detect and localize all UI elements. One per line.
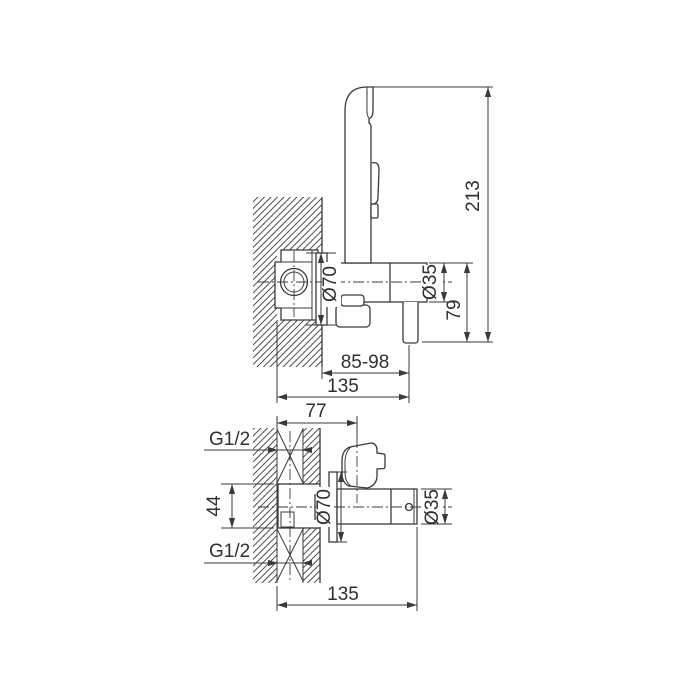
sprayer-handle bbox=[345, 87, 373, 263]
sprayer-trigger bbox=[372, 163, 379, 204]
spout bbox=[403, 302, 418, 343]
dim-label-77: 77 bbox=[305, 401, 326, 422]
wall-hatch-top bbox=[253, 197, 322, 250]
control-knob-cap bbox=[341, 295, 364, 306]
plan-view bbox=[253, 428, 417, 583]
plan-wall-hatch-right-upper bbox=[303, 428, 320, 484]
thread-label-top: G1/2 bbox=[209, 429, 250, 450]
sprayer-trigger-hook bbox=[371, 204, 378, 218]
wall-hatch-left bbox=[253, 250, 277, 320]
dim-label-dia35-plan: Ø35 bbox=[422, 489, 443, 525]
plan-wall-hatch-right-lower bbox=[303, 528, 320, 583]
dimension-labels: 85-98 135 213 79 Ø35 Ø70 77 G1/2 G1/2 44… bbox=[204, 180, 484, 605]
thread-label-bottom: G1/2 bbox=[209, 541, 250, 562]
dim-label-dia70-side: Ø70 bbox=[320, 266, 341, 302]
dim-label-dia35-side: Ø35 bbox=[420, 264, 441, 300]
dim-label-85-98: 85-98 bbox=[341, 352, 390, 373]
dim-label-dia70-plan: Ø70 bbox=[314, 489, 335, 525]
dim-label-79: 79 bbox=[444, 299, 465, 320]
dim-label-213: 213 bbox=[463, 180, 484, 212]
dim-label-135-plan: 135 bbox=[327, 584, 359, 605]
side-view bbox=[253, 87, 427, 367]
dim-label-135-side: 135 bbox=[327, 376, 359, 397]
wall-hatch-bottom bbox=[253, 320, 322, 367]
technical-drawing: 85-98 135 213 79 Ø35 Ø70 77 G1/2 G1/2 44… bbox=[0, 0, 700, 700]
control-knob bbox=[336, 305, 370, 327]
dim-label-44: 44 bbox=[204, 495, 225, 517]
